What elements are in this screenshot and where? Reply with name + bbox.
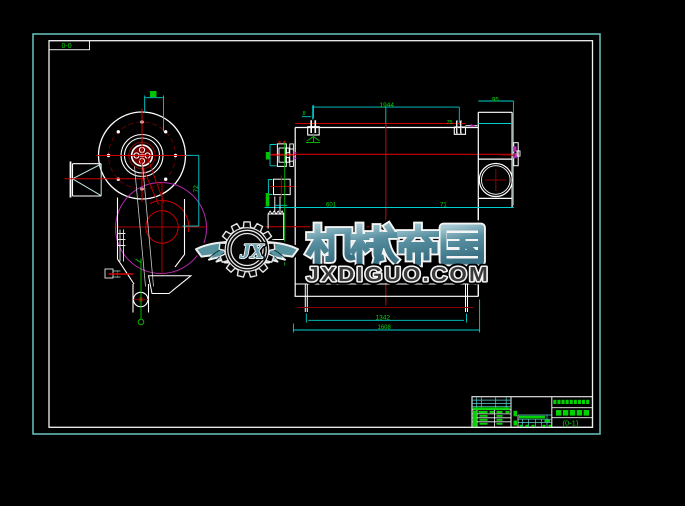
svg-text:(0-1): (0-1) bbox=[563, 419, 579, 428]
svg-text:95: 95 bbox=[492, 98, 499, 104]
svg-text:71: 71 bbox=[440, 203, 447, 209]
svg-text:1944: 1944 bbox=[380, 102, 395, 109]
svg-text:1342: 1342 bbox=[376, 314, 391, 321]
svg-text:8: 8 bbox=[303, 111, 306, 117]
svg-text:75: 75 bbox=[447, 120, 453, 126]
svg-text:0-0: 0-0 bbox=[62, 43, 72, 50]
svg-text:601: 601 bbox=[326, 203, 337, 209]
svg-text:1608: 1608 bbox=[378, 325, 392, 331]
svg-text:72: 72 bbox=[193, 185, 200, 193]
